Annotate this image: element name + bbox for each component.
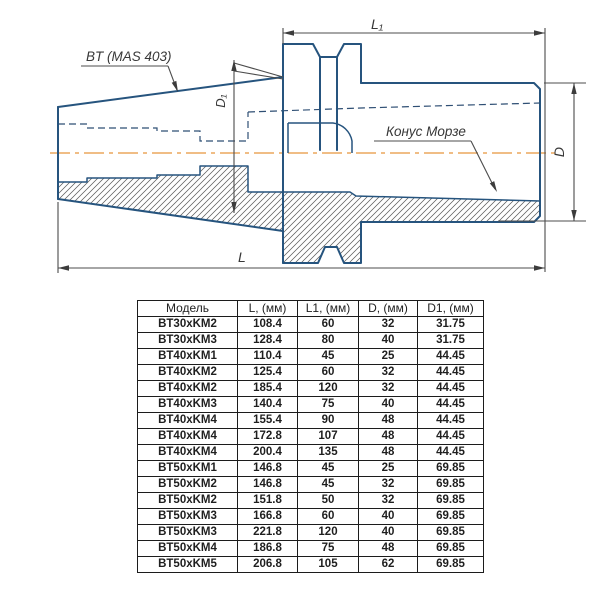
- table-cell: 32: [359, 477, 418, 493]
- table-cell: 44.45: [418, 413, 484, 429]
- page: { "drawing": { "title_label": "BT (MAS 4…: [0, 0, 606, 600]
- table-cell: BT40xKM4: [138, 413, 238, 429]
- table-cell: 45: [298, 461, 359, 477]
- table-cell: 48: [359, 429, 418, 445]
- dim-label-l: L: [238, 249, 246, 265]
- table-cell: 151.8: [238, 493, 298, 509]
- table-cell: BT40xKM2: [138, 381, 238, 397]
- table-cell: 32: [359, 317, 418, 333]
- table-cell: 44.45: [418, 365, 484, 381]
- table-cell: 62: [359, 557, 418, 573]
- table-cell: 40: [359, 509, 418, 525]
- table-cell: BT50xKM1: [138, 461, 238, 477]
- dim-label-d: D: [551, 147, 567, 157]
- table-cell: 69.85: [418, 477, 484, 493]
- table-cell: BT50xKM3: [138, 525, 238, 541]
- table-cell: 44.45: [418, 349, 484, 365]
- table-cell: BT40xKM2: [138, 365, 238, 381]
- table-cell: 80: [298, 333, 359, 349]
- table-cell: 48: [359, 413, 418, 429]
- table-cell: 31.75: [418, 317, 484, 333]
- table-cell: 40: [359, 397, 418, 413]
- section-hatch: [58, 166, 540, 263]
- table-cell: 45: [298, 477, 359, 493]
- table-row: BT50xKM2146.8453269.85: [138, 477, 484, 493]
- table-cell: 32: [359, 381, 418, 397]
- table-cell: 105: [298, 557, 359, 573]
- table-cell: 120: [298, 381, 359, 397]
- table-row: BT30xKM3128.4804031.75: [138, 333, 484, 349]
- table-cell: 140.4: [238, 397, 298, 413]
- table-cell: 200.4: [238, 445, 298, 461]
- table-cell: 186.8: [238, 541, 298, 557]
- table-row: BT50xKM3221.81204069.85: [138, 525, 484, 541]
- table-row: BT40xKM4155.4904844.45: [138, 413, 484, 429]
- table-row: BT50xKM2151.8503269.85: [138, 493, 484, 509]
- morse-taper-label: Конус Морзе: [386, 124, 466, 139]
- table-cell: BT50xKM5: [138, 557, 238, 573]
- table-cell: BT40xKM4: [138, 429, 238, 445]
- col-header-model: Модель: [138, 301, 238, 317]
- toolholder-section-view: BT (MAS 403) Конус Морзе L₁ L D D₁: [0, 0, 606, 296]
- table-cell: BT50xKM3: [138, 509, 238, 525]
- table-cell: 40: [359, 333, 418, 349]
- table-cell: 107: [298, 429, 359, 445]
- col-header-d: D, (мм): [359, 301, 418, 317]
- table-cell: 221.8: [238, 525, 298, 541]
- dimensions-table: Модель L, (мм) L1, (мм) D, (мм) D1, (мм)…: [137, 300, 484, 573]
- table-cell: 172.8: [238, 429, 298, 445]
- table-cell: BT40xKM1: [138, 349, 238, 365]
- table-cell: 31.75: [418, 333, 484, 349]
- table-cell: 45: [298, 349, 359, 365]
- table-cell: 120: [298, 525, 359, 541]
- table-cell: 44.45: [418, 445, 484, 461]
- table-cell: 155.4: [238, 413, 298, 429]
- table-cell: 44.45: [418, 381, 484, 397]
- dim-label-d1: D₁: [213, 94, 228, 108]
- table-cell: 108.4: [238, 317, 298, 333]
- technical-drawing: BT (MAS 403) Конус Морзе L₁ L D D₁: [0, 0, 606, 296]
- table-body: BT30xKM2108.4603231.75BT30xKM3128.480403…: [138, 317, 484, 573]
- table-cell: 25: [359, 349, 418, 365]
- table-cell: BT30xKM3: [138, 333, 238, 349]
- table-cell: 69.85: [418, 525, 484, 541]
- spec-table: Модель L, (мм) L1, (мм) D, (мм) D1, (мм)…: [137, 300, 484, 573]
- table-cell: 44.45: [418, 397, 484, 413]
- table-cell: 146.8: [238, 461, 298, 477]
- table-cell: 69.85: [418, 557, 484, 573]
- table-cell: 75: [298, 397, 359, 413]
- table-cell: 69.85: [418, 509, 484, 525]
- table-row: BT30xKM2108.4603231.75: [138, 317, 484, 333]
- table-cell: 69.85: [418, 493, 484, 509]
- table-row: BT50xKM3166.8604069.85: [138, 509, 484, 525]
- table-cell: 69.85: [418, 541, 484, 557]
- table-row: BT40xKM3140.4754044.45: [138, 397, 484, 413]
- table-row: BT40xKM2125.4603244.45: [138, 365, 484, 381]
- dim-label-l1: L₁: [371, 16, 384, 32]
- table-cell: 40: [359, 525, 418, 541]
- table-cell: 90: [298, 413, 359, 429]
- table-cell: 125.4: [238, 365, 298, 381]
- table-row: BT40xKM1110.4452544.45: [138, 349, 484, 365]
- table-cell: 69.85: [418, 461, 484, 477]
- table-row: BT50xKM5206.81056269.85: [138, 557, 484, 573]
- table-cell: 48: [359, 541, 418, 557]
- table-row: BT40xKM2185.41203244.45: [138, 381, 484, 397]
- table-row: BT50xKM4186.8754869.85: [138, 541, 484, 557]
- table-cell: 110.4: [238, 349, 298, 365]
- table-cell: 128.4: [238, 333, 298, 349]
- table-cell: 185.4: [238, 381, 298, 397]
- taper-standard-label: BT (MAS 403): [86, 49, 172, 64]
- table-cell: 32: [359, 365, 418, 381]
- table-cell: 60: [298, 509, 359, 525]
- table-cell: 48: [359, 445, 418, 461]
- hidden-bore-lines: [58, 103, 540, 141]
- col-header-l1: L1, (мм): [298, 301, 359, 317]
- table-row: BT40xKM4200.41354844.45: [138, 445, 484, 461]
- table-cell: 25: [359, 461, 418, 477]
- table-cell: 32: [359, 493, 418, 509]
- table-row: BT40xKM4172.81074844.45: [138, 429, 484, 445]
- table-cell: BT50xKM2: [138, 493, 238, 509]
- table-cell: 206.8: [238, 557, 298, 573]
- table-cell: 75: [298, 541, 359, 557]
- table-cell: 50: [298, 493, 359, 509]
- col-header-d1: D1, (мм): [418, 301, 484, 317]
- col-header-l: L, (мм): [238, 301, 298, 317]
- table-cell: 146.8: [238, 477, 298, 493]
- table-cell: BT40xKM3: [138, 397, 238, 413]
- table-cell: 60: [298, 317, 359, 333]
- table-cell: 60: [298, 365, 359, 381]
- table-cell: 135: [298, 445, 359, 461]
- table-cell: BT30xKM2: [138, 317, 238, 333]
- table-cell: BT50xKM2: [138, 477, 238, 493]
- table-cell: 166.8: [238, 509, 298, 525]
- table-cell: BT40xKM4: [138, 445, 238, 461]
- table-row: BT50xKM1146.8452569.85: [138, 461, 484, 477]
- table-cell: BT50xKM4: [138, 541, 238, 557]
- table-cell: 44.45: [418, 429, 484, 445]
- table-header-row: Модель L, (мм) L1, (мм) D, (мм) D1, (мм): [138, 301, 484, 317]
